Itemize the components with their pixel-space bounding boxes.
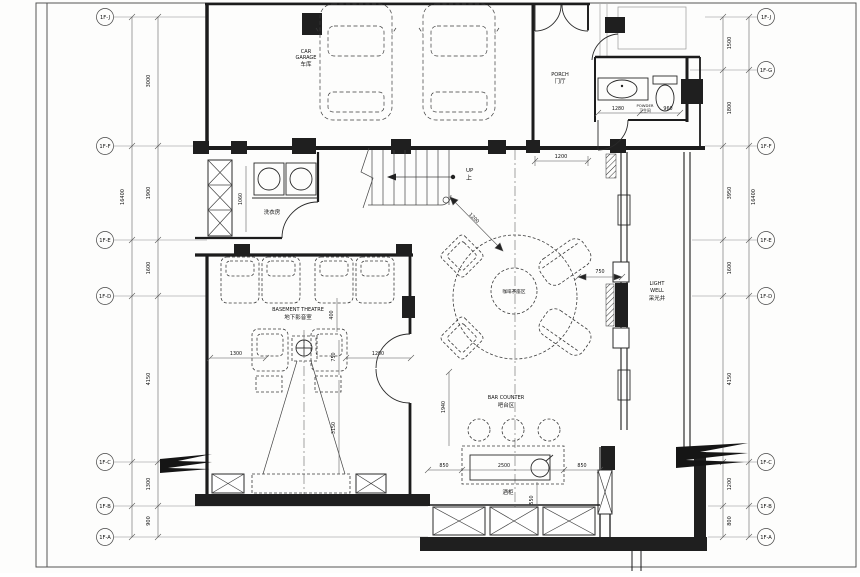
powder-room: 1280 960 POWDER 卫生间 <box>595 76 683 150</box>
wine-dim-text: 550 <box>529 495 535 504</box>
porch-label-en: PORCH <box>551 72 569 78</box>
powder-label-zh: 卫生间 <box>639 108 651 113</box>
bar-label-en: BAR COUNTER <box>488 395 525 401</box>
theatre-label-en: BASEMENT THEATRE <box>272 307 324 313</box>
bar-dim-h: 1940 <box>441 401 447 413</box>
garage-label-zh: 车库 <box>300 60 312 68</box>
sheet-border <box>36 3 856 567</box>
ground-marks <box>160 443 748 473</box>
bar-dim-left: 850 <box>439 463 448 469</box>
grid-bubble-label: 1F-B <box>760 504 772 510</box>
lightwell-label-zh: 采光井 <box>649 294 666 302</box>
bar-stools <box>468 419 560 441</box>
dim-text: 3950 <box>727 187 733 200</box>
grid-bubble-label: 1F-J <box>100 15 110 21</box>
grid-bubble-label: 1F-F <box>99 144 110 150</box>
table-chair <box>439 315 484 360</box>
powder-dim-a: 1280 <box>612 106 624 112</box>
laundry-label: 洗衣房 <box>264 208 281 216</box>
up-label-zh: 上 <box>466 174 472 182</box>
garage-label-en2: GARAGE <box>296 55 317 61</box>
grid-bubble-label: 1F-D <box>99 294 111 300</box>
bar-counter-area: BAR COUNTER 吧台区 1940 850 2500 850 酒柜 550 <box>425 369 603 518</box>
coffee-seating: 咖啡茶座区 750 <box>439 150 625 535</box>
grid-left-bubbles: 1F-J 1F-F 1F-E 1F-D 1F-C 1F-B 1F-A <box>97 9 114 546</box>
car <box>419 4 499 120</box>
light-well: LIGHT WELL 采光井 <box>649 281 666 302</box>
dim-text: 1200 <box>727 478 733 491</box>
grid-right-dim-texts: 1500 1800 3950 1600 4150 1200 800 16400 <box>727 37 757 526</box>
dim-text: 1600 <box>727 262 733 275</box>
wine-cabinet-label: 酒柜 <box>502 488 514 496</box>
bar-dim-center: 2500 <box>498 463 510 469</box>
grid-bubble-label: 1F-C <box>99 460 111 466</box>
grid-bubble-label: 1F-C <box>760 460 772 466</box>
dim-text: 900 <box>146 516 152 526</box>
grid-bubble-label: 1F-F <box>760 144 771 150</box>
grid-right-ticks <box>720 14 752 540</box>
table-bench <box>535 235 595 289</box>
car <box>316 4 396 120</box>
lightwell-label-en1: LIGHT <box>650 281 666 287</box>
dim-text: 3000 <box>146 75 152 88</box>
grid-bubble-label: 1F-E <box>99 238 110 244</box>
garage: CAR GARAGE 车库 <box>296 4 499 120</box>
dim-text-overall: 16400 <box>751 189 757 205</box>
washing-machines <box>252 163 318 198</box>
up-label-en: UP <box>466 168 474 174</box>
laundry-room: 洗衣房 1060 <box>208 160 318 238</box>
grid-bubble-label: 1F-B <box>99 504 111 510</box>
bar-dim-right: 850 <box>577 463 586 469</box>
theatre-dims <box>207 298 414 474</box>
table-bench <box>535 305 595 359</box>
bar-label: BAR COUNTER 吧台区 <box>488 395 525 409</box>
grid-bubble-label: 1F-A <box>760 535 772 541</box>
theatre-label: BASEMENT THEATRE 地下影音室 <box>272 307 324 321</box>
basement-theatre: BASEMENT THEATRE 地下影音室 <box>207 257 414 494</box>
grid-bubble-label: 1F-E <box>760 238 771 244</box>
stair-direction-arrow <box>387 174 396 181</box>
theatre-recliners-back-row <box>221 257 394 303</box>
dim-text: 4150 <box>727 373 733 386</box>
theatre-dim-mid: 750 <box>331 352 337 361</box>
coffee-label: 咖啡茶座区 <box>503 288 526 295</box>
theatre-dim-gap: 400 <box>329 310 335 319</box>
lightwell-label-en2: WELL <box>650 288 664 294</box>
dim-text-overall: 16400 <box>120 189 126 205</box>
bottom-cabinet-strip <box>433 507 595 535</box>
dim-text: 1800 <box>727 102 733 115</box>
grid-bubble-label: 1F-D <box>760 294 772 300</box>
grid-left-dim-texts: 3000 1900 1600 4150 1300 900 16400 <box>120 75 152 526</box>
theatre-dim-depth: 3150 <box>331 422 337 434</box>
grid-bubble-label: 1F-J <box>761 15 771 21</box>
stair-diag-dim-text: 1200 <box>467 212 480 225</box>
garage-label: CAR GARAGE 车库 <box>296 49 317 68</box>
laundry-dim-text: 1060 <box>238 193 244 205</box>
dim-text: 1500 <box>727 37 733 50</box>
grid-bubble-label: 1F-A <box>99 535 111 541</box>
grid-right-bubbles: 1F-J 1F-G 1F-F 1F-E 1F-D 1F-C 1F-B 1F-A <box>758 9 775 546</box>
table-chair <box>439 233 484 278</box>
projector <box>292 336 317 361</box>
table-dim-text: 750 <box>595 269 604 275</box>
porch-dim-text: 1200 <box>555 154 568 160</box>
theatre-dim-right: 1200 <box>372 351 384 357</box>
dim-text: 1600 <box>146 262 152 275</box>
dim-text: 1900 <box>146 187 152 200</box>
powder-dim-b: 960 <box>663 106 672 112</box>
theatre-door <box>376 334 410 403</box>
stairs: UP 上 1200 <box>361 148 503 251</box>
dim-text: 1300 <box>146 478 152 491</box>
grid-left-ticks <box>129 14 161 540</box>
bar-label-zh: 吧台区 <box>498 401 515 409</box>
floor-plan-drawing: 1F-J 1F-F 1F-E 1F-D 1F-C 1F-B 1F-A 3000 … <box>0 0 860 573</box>
stair-up-label: UP 上 <box>466 168 474 182</box>
porch-label: PORCH 门厅 <box>551 72 569 85</box>
floor-plan-page: 1F-J 1F-F 1F-E 1F-D 1F-C 1F-B 1F-A 3000 … <box>0 0 860 573</box>
grid-left: 1F-J 1F-F 1F-E 1F-D 1F-C 1F-B 1F-A 3000 … <box>97 9 429 546</box>
theatre-dim-left: 1300 <box>230 351 242 357</box>
walls <box>195 4 707 571</box>
bar-dims <box>425 467 603 473</box>
powder-label: POWDER 卫生间 <box>637 103 654 113</box>
dim-text: 800 <box>727 516 733 526</box>
theatre-label-zh: 地下影音室 <box>284 313 312 321</box>
grid-bubble-label: 1F-G <box>760 68 772 74</box>
porch-label-zh: 门厅 <box>554 77 566 85</box>
dim-text: 4150 <box>146 373 152 386</box>
